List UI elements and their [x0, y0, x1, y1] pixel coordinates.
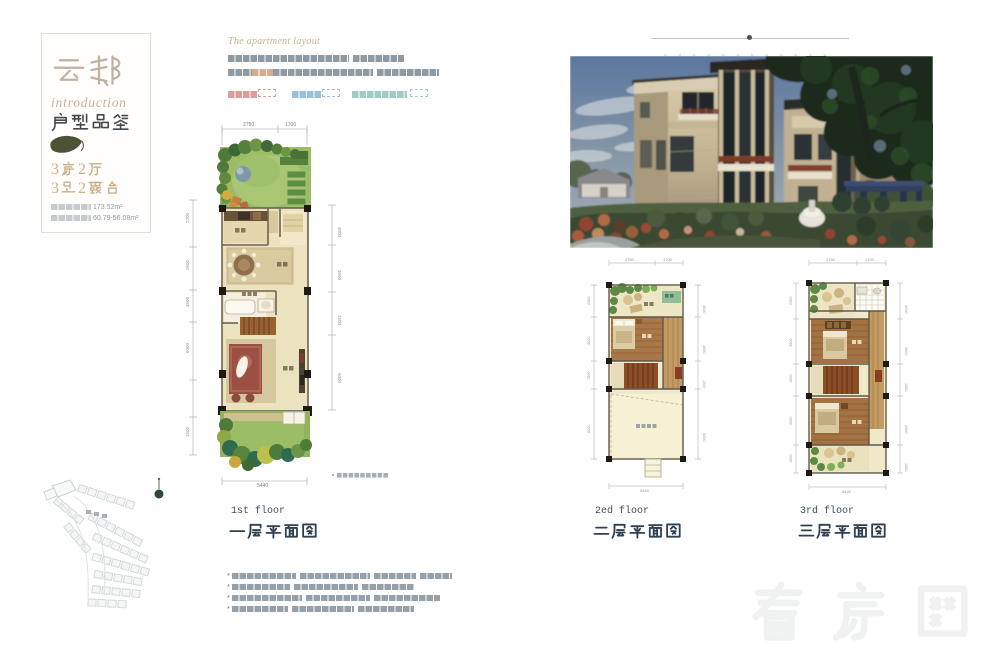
- svg-text:2300: 2300: [587, 297, 591, 305]
- svg-text:5440: 5440: [640, 488, 650, 493]
- svg-text:1500: 1500: [185, 426, 190, 437]
- svg-text:3000: 3000: [337, 227, 342, 238]
- svg-text:1500: 1500: [904, 463, 908, 471]
- svg-text:1500: 1500: [587, 372, 591, 380]
- svg-text:2300: 2300: [185, 212, 190, 223]
- svg-text:1500: 1500: [789, 375, 793, 383]
- svg-text:4500: 4500: [789, 417, 793, 425]
- svg-text:3000: 3000: [904, 305, 908, 313]
- svg-text:6000: 6000: [185, 342, 190, 353]
- svg-text:3600: 3600: [789, 339, 793, 347]
- svg-text:3600: 3600: [702, 345, 706, 353]
- svg-text:3600: 3600: [185, 259, 190, 270]
- svg-text:1500: 1500: [904, 383, 908, 391]
- svg-text:6000: 6000: [587, 425, 591, 433]
- svg-text:6000: 6000: [702, 433, 706, 441]
- svg-text:3000: 3000: [702, 305, 706, 313]
- svg-text:4500: 4500: [904, 425, 908, 433]
- svg-text:5440: 5440: [842, 489, 852, 494]
- svg-text:1500: 1500: [789, 455, 793, 463]
- svg-text:1700: 1700: [663, 257, 673, 262]
- svg-text:4500: 4500: [185, 296, 190, 307]
- svg-text:1500: 1500: [702, 380, 706, 388]
- svg-text:2300: 2300: [789, 297, 793, 305]
- svg-text:5440: 5440: [257, 483, 268, 489]
- svg-text:1700: 1700: [285, 122, 296, 128]
- svg-text:3: 3: [51, 161, 59, 177]
- svg-text:2750: 2750: [625, 257, 635, 262]
- svg-text:1700: 1700: [865, 257, 875, 262]
- svg-text:6000: 6000: [337, 373, 342, 384]
- svg-text:3600: 3600: [587, 337, 591, 345]
- svg-text:2: 2: [78, 161, 86, 177]
- svg-text:2750: 2750: [243, 122, 254, 128]
- svg-text:1500: 1500: [337, 315, 342, 326]
- svg-text:2: 2: [78, 180, 86, 196]
- svg-text:3: 3: [51, 180, 59, 196]
- svg-text:2750: 2750: [826, 257, 836, 262]
- svg-text:3600: 3600: [904, 347, 908, 355]
- svg-text:3600: 3600: [337, 270, 342, 281]
